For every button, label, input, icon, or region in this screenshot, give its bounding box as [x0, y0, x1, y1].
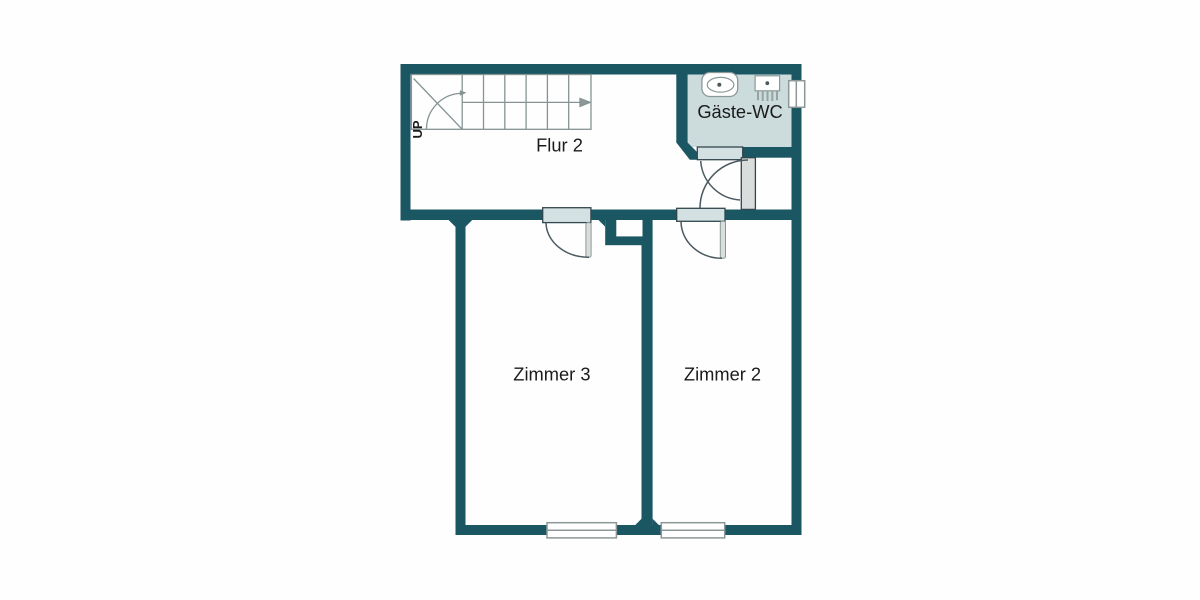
svg-text:UP: UP — [410, 120, 425, 138]
svg-text:Zimmer 3: Zimmer 3 — [513, 364, 590, 385]
svg-text:Flur 2: Flur 2 — [536, 135, 583, 156]
svg-text:Gäste-WC: Gäste-WC — [697, 101, 782, 122]
svg-text:Zimmer 2: Zimmer 2 — [684, 364, 761, 385]
